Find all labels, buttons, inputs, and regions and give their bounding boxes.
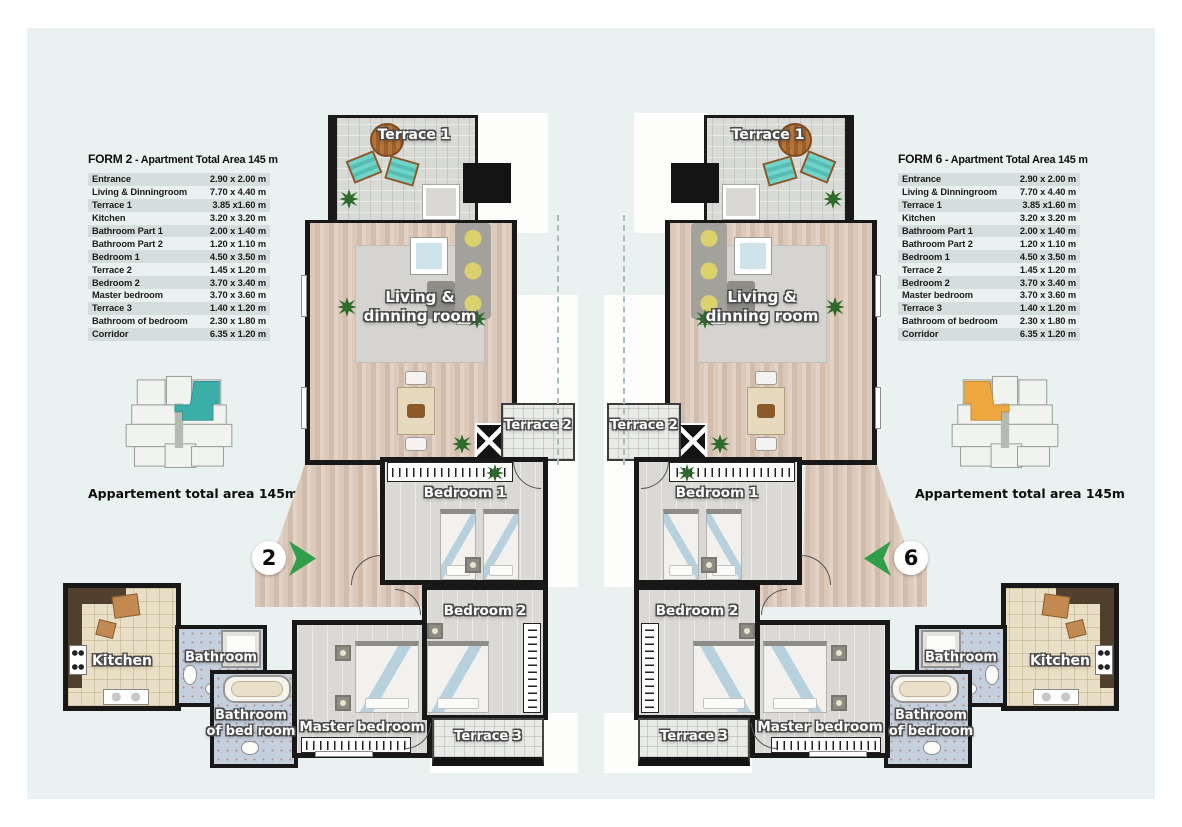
dining-table-icon <box>397 387 435 435</box>
wardrobe-icon <box>641 623 659 713</box>
nightstand-icon <box>739 623 755 639</box>
kitchen-table-icon <box>1042 593 1071 618</box>
white-underlay <box>604 457 634 587</box>
plant-icon <box>677 463 697 483</box>
nightstand-icon <box>427 623 443 639</box>
bathtub-icon <box>891 675 959 703</box>
plant-icon <box>485 463 505 483</box>
wardrobe-icon <box>523 623 541 713</box>
room-label-living-2: dinning room <box>697 308 827 325</box>
plant-icon <box>451 433 473 455</box>
window <box>315 751 373 757</box>
room-label-master: Master bedroom <box>288 720 436 736</box>
double-bed-icon <box>693 641 755 713</box>
plant-icon <box>338 188 360 210</box>
room-label-terrace1: Terrace 1 <box>353 127 475 143</box>
room-label-bathbed-1: Bathroom <box>195 709 307 724</box>
window <box>875 387 881 429</box>
room-label-terrace3: Terrace 3 <box>433 730 543 745</box>
room-label-living-1: Living & <box>355 289 485 306</box>
window <box>875 275 881 317</box>
plant-icon <box>822 188 844 210</box>
kitchen-table-icon <box>112 593 141 618</box>
window <box>301 387 307 429</box>
coffee-table-icon <box>411 238 447 274</box>
floor-plan-form6: Terrace 1 Living & dinning room Terrace … <box>599 105 1127 785</box>
window <box>809 751 867 757</box>
room-label-bathroom: Bathroom <box>165 651 277 666</box>
white-underlay <box>548 457 578 587</box>
plant-icon <box>824 296 846 318</box>
room-label-living-2: dinning room <box>355 308 485 325</box>
room-label-master: Master bedroom <box>746 720 894 736</box>
room-label-bathbed-2: of bed room <box>195 725 307 740</box>
double-bed-icon <box>427 641 489 713</box>
room-label-terrace1: Terrace 1 <box>707 127 829 143</box>
sink-icon <box>103 689 149 705</box>
chair-icon <box>755 437 777 451</box>
toilet-icon <box>923 741 941 755</box>
single-bed-icon <box>483 509 519 580</box>
room-label-terrace3: Terrace 3 <box>639 730 749 745</box>
room-label-kitchen: Kitchen <box>1005 653 1115 669</box>
double-bed-icon <box>763 641 827 713</box>
room-label-terrace2: Terrace 2 <box>589 419 699 434</box>
unit-number-badge-right: 6 <box>894 541 928 575</box>
plant-icon <box>709 433 731 455</box>
coffee-table-icon <box>735 238 771 274</box>
unit-number-badge-left: 2 <box>252 541 286 575</box>
wall-block <box>671 163 719 203</box>
armchair-icon <box>723 185 759 219</box>
nightstand-icon <box>335 695 351 711</box>
room-label-living-1: Living & <box>697 289 827 306</box>
double-bed-icon <box>355 641 419 713</box>
room-label-bedroom2: Bedroom 2 <box>425 604 545 620</box>
room-label-bedroom1: Bedroom 1 <box>395 486 535 502</box>
single-bed-icon <box>663 509 699 580</box>
chair-icon <box>405 371 427 385</box>
sink-icon <box>1033 689 1079 705</box>
nightstand-icon <box>465 557 481 573</box>
nightstand-icon <box>335 645 351 661</box>
nightstand-icon <box>831 645 847 661</box>
room-label-bathbed-2: of bedroom <box>875 725 987 740</box>
room-label-bedroom2: Bedroom 2 <box>637 604 757 620</box>
room-label-kitchen: Kitchen <box>67 653 177 669</box>
chair-icon <box>755 371 777 385</box>
room-label-bedroom1: Bedroom 1 <box>647 486 787 502</box>
nightstand-icon <box>701 557 717 573</box>
dining-table-icon <box>747 387 785 435</box>
wall-block <box>463 163 511 203</box>
room-label-terrace2: Terrace 2 <box>483 419 593 434</box>
room-label-bathroom: Bathroom <box>905 651 1017 666</box>
room-label-bathbed-1: Bathroom <box>875 709 987 724</box>
armchair-icon <box>423 185 459 219</box>
nightstand-icon <box>831 695 847 711</box>
floor-plan-form2: Terrace 1 Living & dinning room Terrace … <box>55 105 583 785</box>
toilet-icon <box>241 741 259 755</box>
toilet-icon <box>985 665 999 685</box>
bathtub-icon <box>223 675 291 703</box>
window <box>301 275 307 317</box>
chair-icon <box>405 437 427 451</box>
toilet-icon <box>183 665 197 685</box>
